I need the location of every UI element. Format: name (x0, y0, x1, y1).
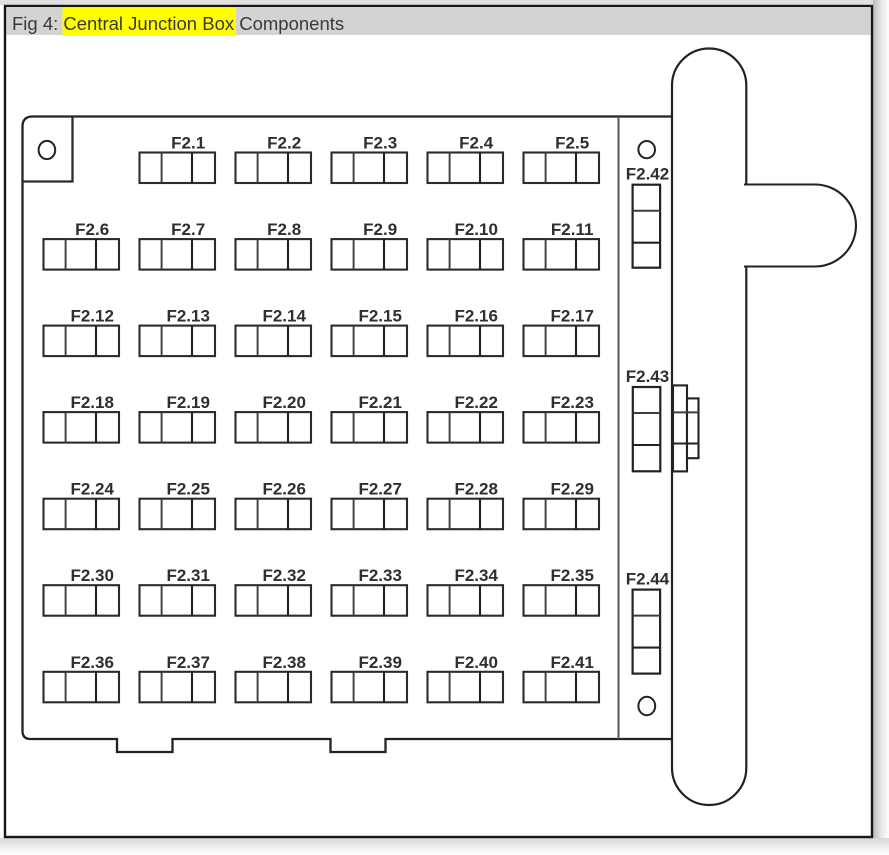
svg-text:F2.38: F2.38 (262, 653, 305, 672)
svg-text:F2.8: F2.8 (267, 220, 301, 239)
svg-text:F2.37: F2.37 (166, 653, 209, 672)
svg-text:F2.3: F2.3 (363, 134, 397, 153)
svg-text:F2.21: F2.21 (358, 393, 401, 412)
svg-text:F2.26: F2.26 (262, 480, 305, 499)
svg-text:F2.19: F2.19 (166, 393, 209, 412)
svg-text:F2.29: F2.29 (550, 480, 593, 499)
svg-text:F2.43: F2.43 (626, 367, 669, 386)
svg-text:F2.23: F2.23 (550, 393, 593, 412)
svg-text:F2.1: F2.1 (171, 134, 205, 153)
svg-text:Fig 4: Central Junction Box Co: Fig 4: Central Junction Box Components (12, 13, 344, 34)
svg-text:F2.30: F2.30 (70, 566, 113, 585)
svg-text:F2.25: F2.25 (166, 480, 209, 499)
svg-text:F2.22: F2.22 (454, 393, 497, 412)
svg-text:F2.32: F2.32 (262, 566, 305, 585)
svg-text:F2.2: F2.2 (267, 134, 301, 153)
svg-text:F2.34: F2.34 (454, 566, 498, 585)
svg-text:F2.4: F2.4 (459, 134, 494, 153)
svg-text:F2.24: F2.24 (70, 480, 114, 499)
svg-text:F2.28: F2.28 (454, 480, 497, 499)
svg-text:F2.42: F2.42 (626, 165, 669, 184)
svg-text:F2.44: F2.44 (626, 570, 670, 589)
svg-text:F2.18: F2.18 (70, 393, 113, 412)
svg-text:F2.6: F2.6 (75, 220, 109, 239)
svg-text:F2.9: F2.9 (363, 220, 397, 239)
svg-text:F2.36: F2.36 (70, 653, 113, 672)
svg-text:F2.35: F2.35 (550, 566, 593, 585)
svg-text:F2.40: F2.40 (454, 653, 497, 672)
svg-text:F2.41: F2.41 (550, 653, 593, 672)
svg-text:F2.16: F2.16 (454, 307, 497, 326)
svg-text:F2.14: F2.14 (262, 307, 306, 326)
svg-text:F2.33: F2.33 (358, 566, 401, 585)
svg-text:F2.15: F2.15 (358, 307, 401, 326)
svg-text:F2.10: F2.10 (454, 220, 497, 239)
svg-text:F2.20: F2.20 (262, 393, 305, 412)
svg-text:F2.12: F2.12 (70, 307, 113, 326)
svg-text:F2.5: F2.5 (555, 134, 589, 153)
svg-text:F2.27: F2.27 (358, 480, 401, 499)
svg-text:F2.13: F2.13 (166, 307, 209, 326)
svg-text:F2.7: F2.7 (171, 220, 205, 239)
svg-text:F2.11: F2.11 (551, 220, 594, 239)
svg-text:F2.31: F2.31 (166, 566, 209, 585)
svg-text:F2.39: F2.39 (358, 653, 401, 672)
svg-text:F2.17: F2.17 (550, 307, 593, 326)
